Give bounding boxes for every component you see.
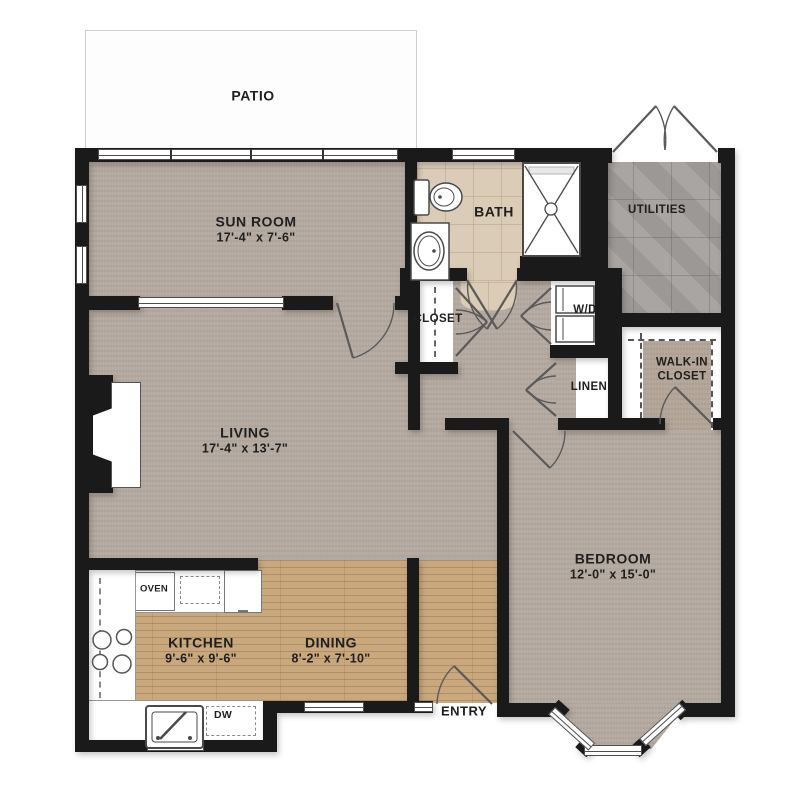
living-label: LIVING <box>220 425 270 442</box>
wall-bedroom-north-b <box>558 418 665 430</box>
kitchen-dims: 9'-6" x 9'-6" <box>165 652 237 667</box>
bedroom-dims: 12'-0" x 15'-0" <box>570 568 656 583</box>
wall-utilities-south <box>608 313 722 327</box>
bay-window-center <box>584 745 642 756</box>
wall-linen-walkin-divider <box>608 268 622 430</box>
walk-in-closet-label: WALK-IN CLOSET <box>656 356 708 383</box>
kitchen-label: KITCHEN <box>168 635 234 652</box>
wall-bath-west <box>405 162 417 281</box>
wall-utilities-door-post-left <box>595 148 612 163</box>
dining-window <box>304 702 364 712</box>
wall-wd-south <box>550 345 608 358</box>
wall-sunroom-living-left <box>88 296 140 310</box>
wall-bedroom-west <box>497 418 509 712</box>
wall-sunroom-living-mid <box>282 296 333 310</box>
wall-right-exterior <box>721 148 735 717</box>
bath-label: BATH <box>474 204 514 221</box>
entry-sidelight <box>414 702 433 712</box>
utilities-label: UTILITIES <box>628 204 686 218</box>
wd-label: W/D <box>573 304 597 318</box>
wall-hall-west <box>408 281 420 430</box>
bath-window <box>452 149 515 160</box>
window-mullion-2 <box>250 149 252 160</box>
linen-label: LINEN <box>571 381 608 395</box>
dining-label: DINING <box>305 635 357 652</box>
sunroom-patio-window <box>98 149 398 160</box>
wall-kitchen-living <box>88 558 258 570</box>
sunroom-left-window-2 <box>76 246 87 284</box>
closet-label: CLOSET <box>413 313 462 327</box>
wall-utilities-wd-divider <box>595 162 608 345</box>
floor-plan: PATIO SUN ROOM 17'-4" x 7'-6" BATH UTILI… <box>0 0 806 786</box>
walk-in-closet-label-line1: WALK-IN <box>656 356 708 368</box>
wall-shower-east <box>578 162 595 278</box>
sunroom-left-window-1 <box>76 185 87 223</box>
bedroom-label: BEDROOM <box>575 551 652 568</box>
wall-dining-entry-divider <box>407 558 419 703</box>
entry-label: ENTRY <box>441 703 487 718</box>
walk-in-closet-label-line2: CLOSET <box>657 370 706 382</box>
fireplace-hearth <box>93 408 113 462</box>
window-mullion-3 <box>322 149 324 160</box>
sun-room-dims: 17'-4" x 7'-6" <box>217 231 296 246</box>
wall-bedroom-north-a <box>445 418 500 430</box>
oven-label: OVEN <box>140 583 168 594</box>
wall-left-exterior <box>75 148 89 752</box>
wall-closet-cap <box>395 362 458 374</box>
sunroom-living-window <box>138 297 284 308</box>
sun-room-label: SUN ROOM <box>216 214 297 231</box>
dishwasher-label: DW <box>214 709 232 721</box>
wall-bedroom-north-post <box>713 418 722 430</box>
wall-shower-south <box>520 256 583 280</box>
patio-label: PATIO <box>231 88 274 105</box>
kitchen-sink-window <box>147 741 204 751</box>
dining-dims: 8'-2" x 7'-10" <box>292 652 371 667</box>
living-dims: 17'-4" x 13'-7" <box>202 442 288 457</box>
fireplace-firebox <box>111 382 141 488</box>
window-mullion-1 <box>170 149 172 160</box>
